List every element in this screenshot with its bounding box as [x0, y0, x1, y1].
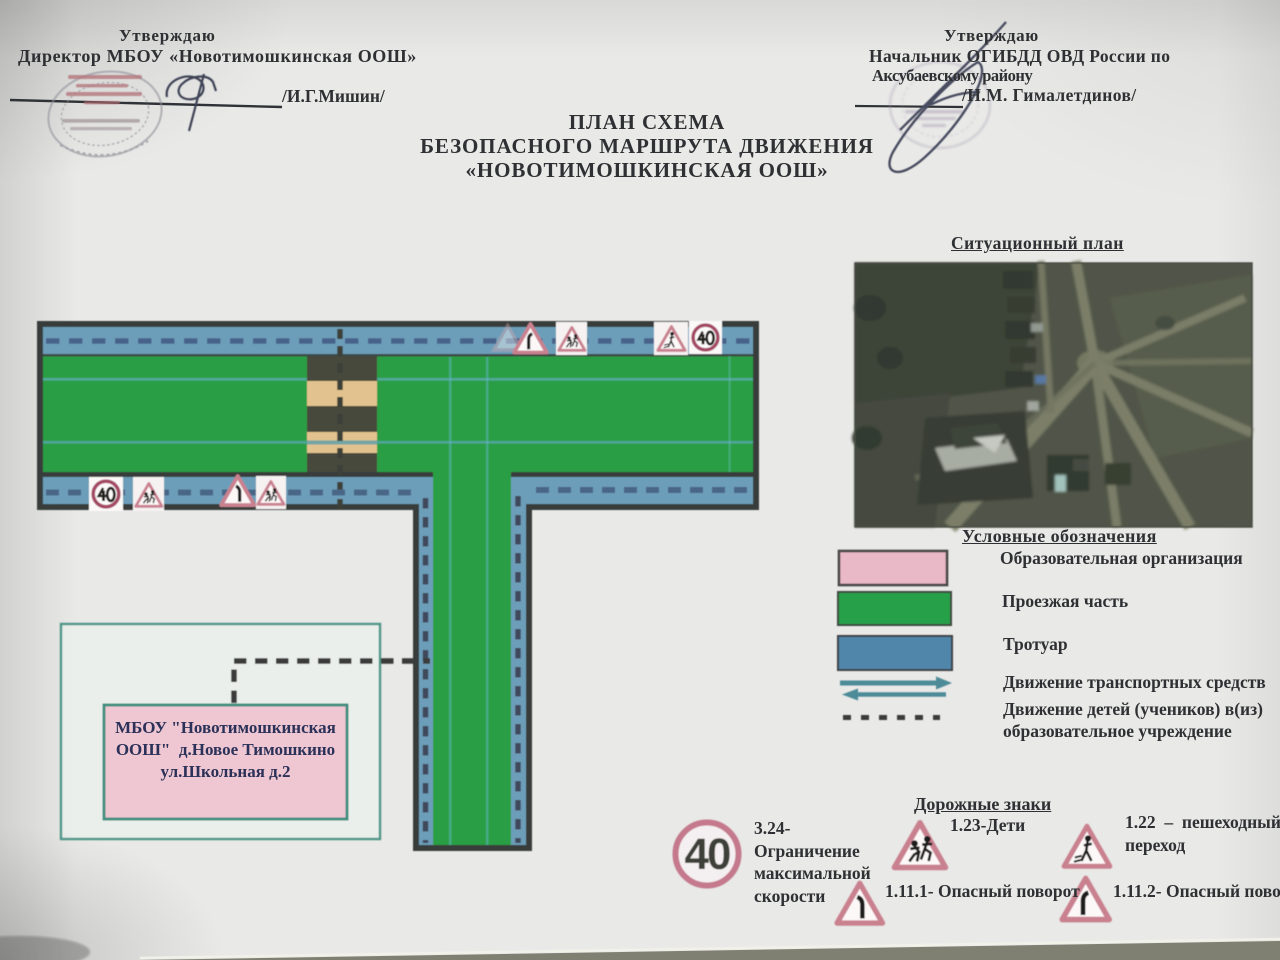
svg-text:40: 40 — [685, 830, 730, 879]
